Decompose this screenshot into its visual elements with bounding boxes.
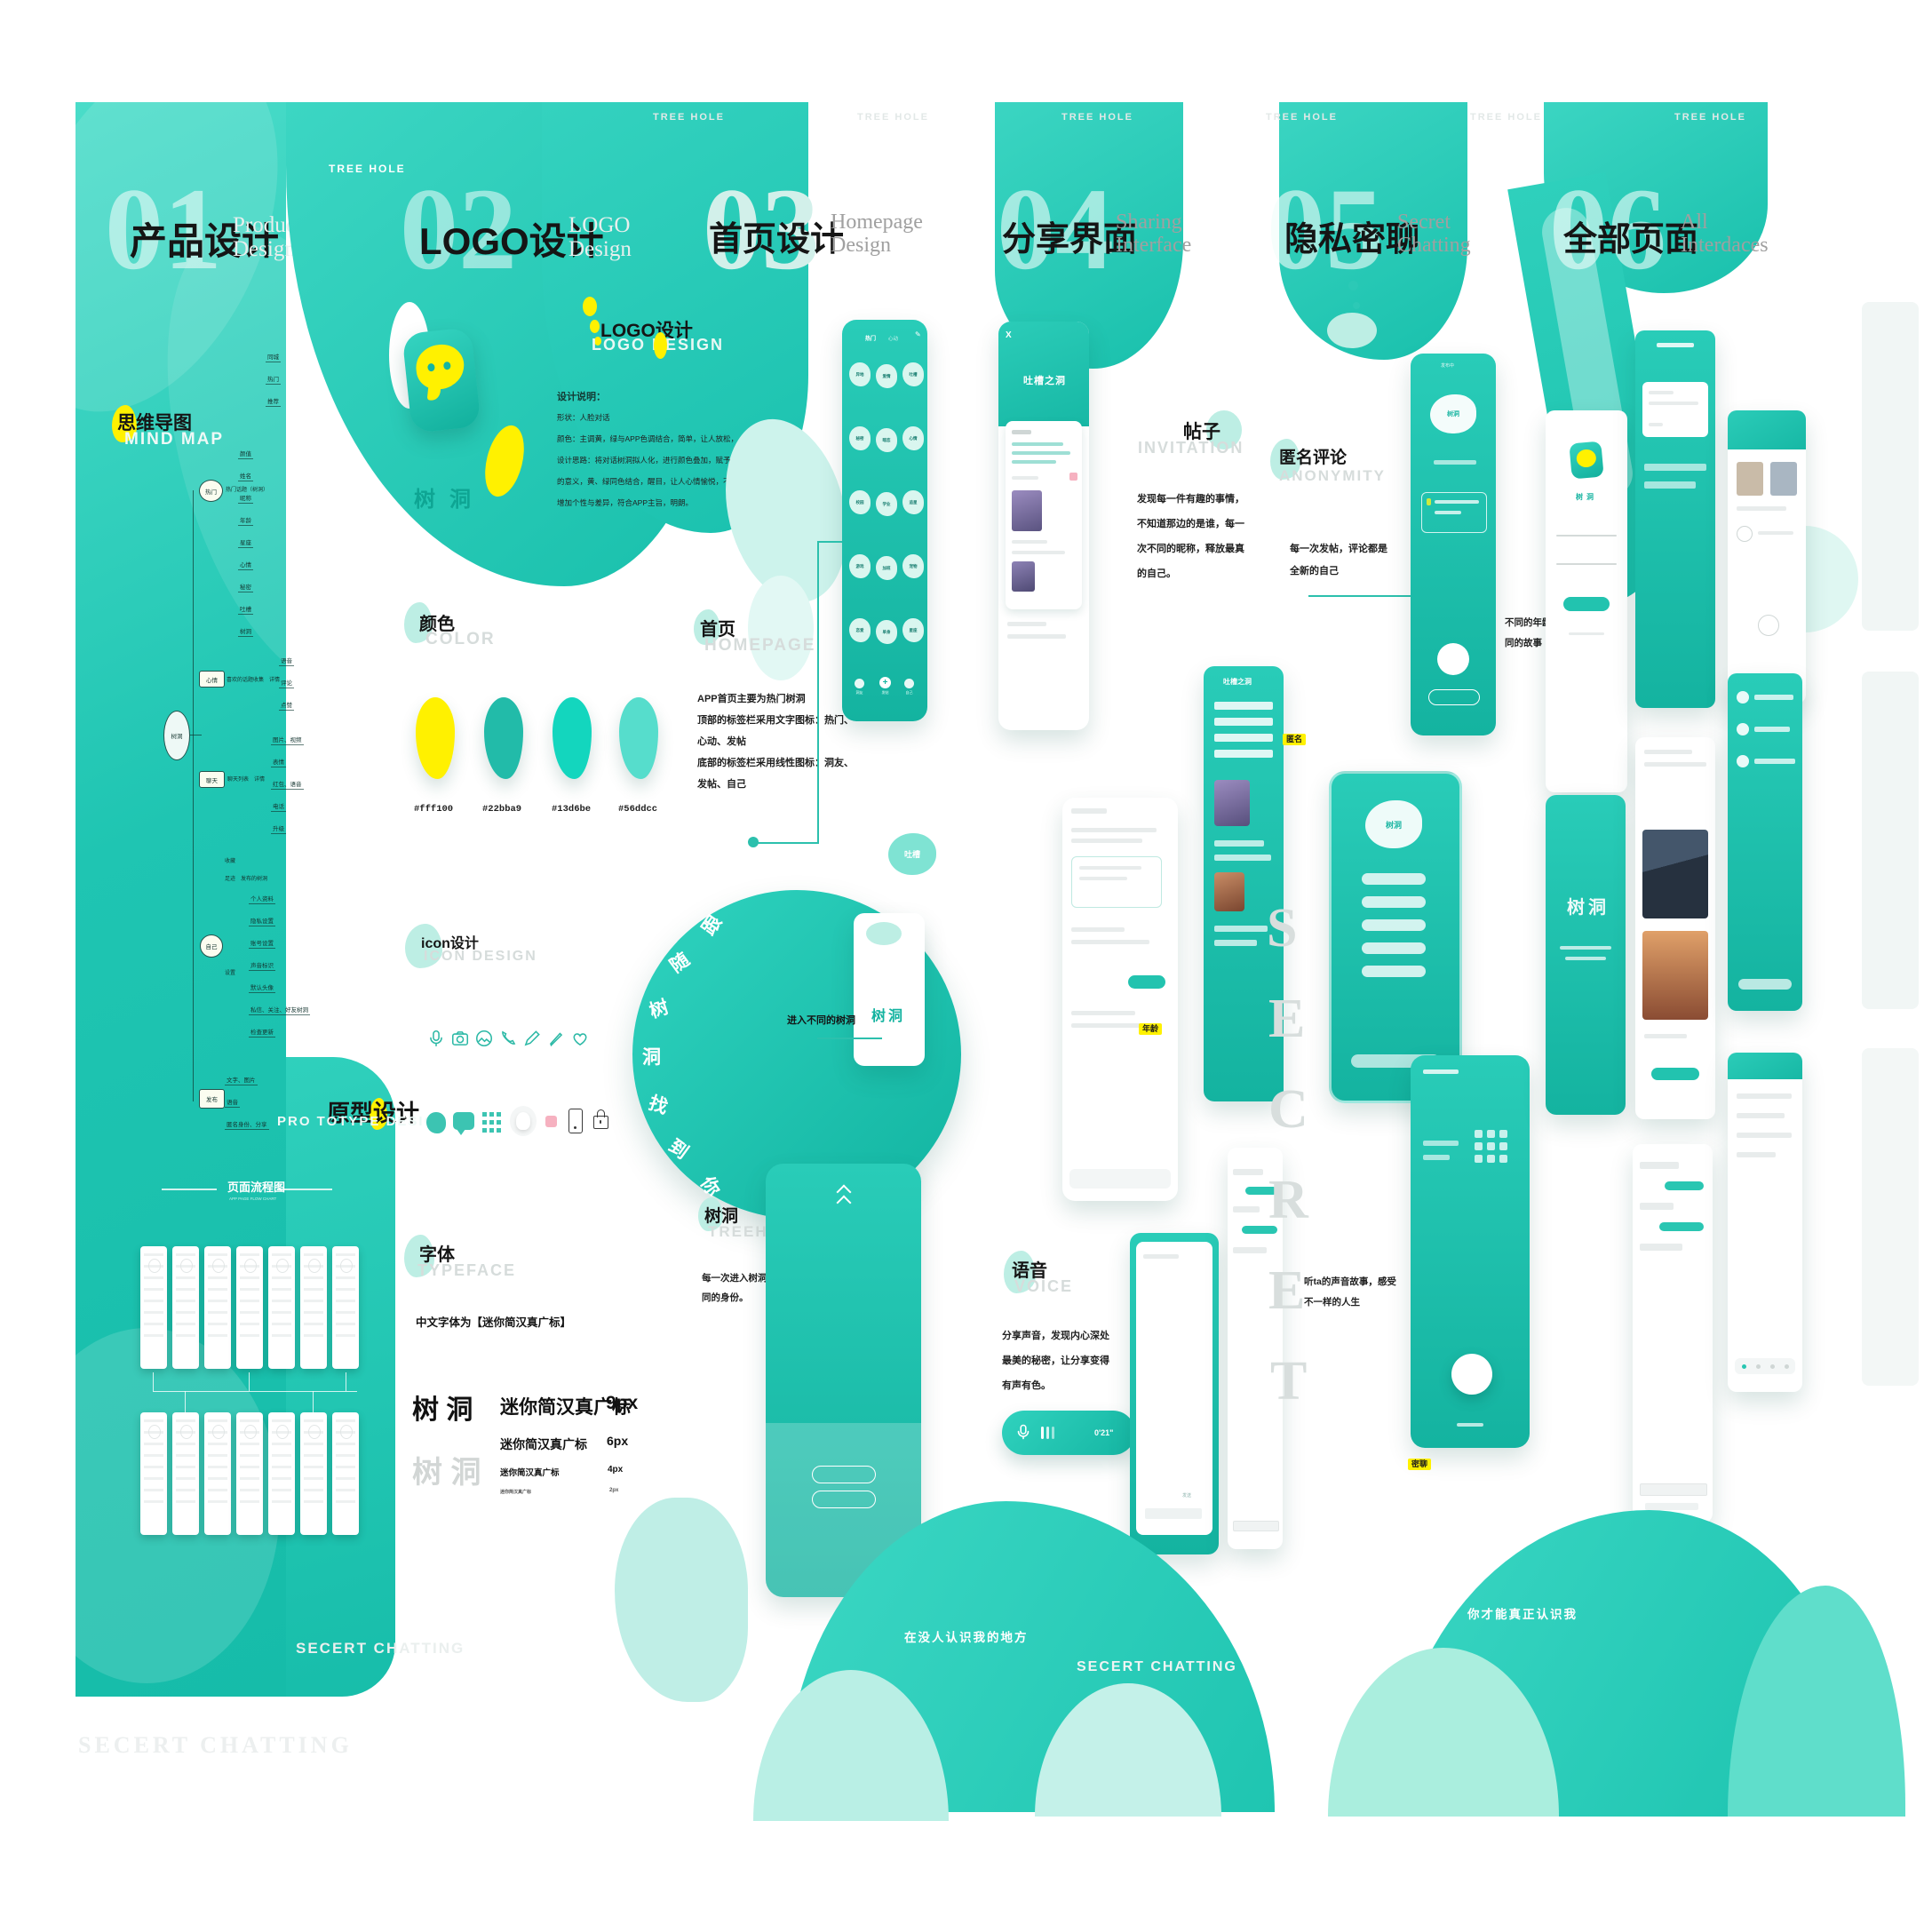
topic-list-title: 吐槽之洞: [1223, 677, 1252, 687]
ghost-icon: [510, 1106, 537, 1136]
bubble-solid-icon: [426, 1112, 446, 1133]
cancel-button: [812, 1491, 876, 1508]
wireframe-screen: [140, 1246, 167, 1369]
flow-title-en: APP PAGE FLOW CHART: [229, 1197, 276, 1201]
camera-icon: [450, 1029, 470, 1053]
text-bar: [1012, 476, 1038, 480]
story-pill: [1362, 966, 1426, 977]
topic-bubble: 爱情: [876, 364, 897, 388]
post-photo: [1012, 490, 1042, 531]
connector-dot: [748, 837, 759, 847]
wireframe-screen: [268, 1412, 295, 1535]
deco-blob: [615, 1498, 748, 1702]
wireframe-screen: [300, 1246, 327, 1369]
minus-icon: [855, 679, 864, 688]
story-pill: [1362, 919, 1426, 931]
secert-chatting-watermark: SECERT CHATTING: [296, 1640, 465, 1658]
bottom-slogan-right: 你才能真正认识我: [1467, 1604, 1578, 1622]
typeface-size-row: 迷你简汉真广标: [500, 1435, 587, 1453]
chat-bar: [1233, 1247, 1267, 1253]
comment-card: [1421, 492, 1487, 533]
connector-line: [1308, 595, 1411, 597]
wireframe-screen: [332, 1412, 359, 1535]
chat-bubble-icon: [453, 1112, 474, 1130]
pen-icon: [546, 1029, 566, 1053]
wireframe-screen: [268, 1246, 295, 1369]
text-bar: [1649, 391, 1674, 394]
bird-glyph: [1758, 615, 1779, 636]
flow-connector: [185, 1391, 186, 1412]
anonymous-button: [1428, 689, 1480, 705]
mindmap-branch-chat-leaves: 图片、视频 表情 红包、语音 电话 升级: [271, 735, 304, 846]
mindmap-branch-self-leaves: 个人资料 隐私设置 账号设置 声音标识 默认头像 私信、关注、好友树洞 检查更新: [249, 894, 310, 1049]
nav-item-post: + 发帖: [879, 677, 891, 696]
secert-chatting-watermark: SECERT CHATTING: [1077, 1659, 1237, 1675]
list-row: [1214, 840, 1264, 847]
sound-wave-icon: [1041, 1427, 1044, 1439]
chat-pill: [1659, 1222, 1704, 1231]
typeface-size-label: 2px: [609, 1488, 618, 1493]
tree-hole-watermark: TREE HOLE: [857, 112, 929, 123]
mic-icon: [1014, 1423, 1032, 1445]
lock-keyhole: [600, 1120, 602, 1124]
secret-letter: E: [1268, 988, 1305, 1051]
lock-shackle: [597, 1109, 605, 1117]
chat-bar: [1640, 1203, 1674, 1210]
list-row: [1754, 695, 1793, 700]
panel6-subtitle: All Interdaces: [1681, 211, 1769, 258]
login-screen: 树洞: [1546, 410, 1627, 792]
anonymity-section-copy: 每一次发帖，评论都是 全新的自己: [1290, 538, 1387, 583]
tag-age: 年龄: [1139, 1023, 1162, 1035]
deco-blob: [866, 922, 902, 945]
text-bar: [1560, 946, 1611, 950]
wireframe-screen: [204, 1412, 231, 1535]
secret-letter: E: [1268, 1260, 1305, 1323]
homepage-phone-mockup: 热门 心动 ✎ 异地 爱情 吐槽 秘密 暗恋 心情 校园 学业 追星 游戏 加班…: [842, 320, 927, 721]
app-logo-wordmark: 树洞: [414, 481, 485, 513]
mindmap-node-mood: 心情: [199, 671, 225, 688]
post-photo-small: [1012, 561, 1035, 592]
list-row: [1644, 464, 1706, 471]
panel2-subtitle: LOGO Design: [568, 213, 632, 261]
list-row: [1214, 734, 1273, 742]
nav-item-me: 自己: [904, 679, 914, 696]
text-bar: [1143, 1254, 1179, 1259]
chevron-down-icon: [904, 679, 914, 688]
home-section-title-en: HOMEPAGE: [704, 636, 815, 656]
typeface-size-row: 迷你简汉真广标: [500, 1466, 560, 1478]
mindmap-note: 喜欢的话题收集 详情: [227, 675, 280, 683]
mindmap-node-post: 发布: [199, 1089, 225, 1109]
mindmap-branch-hot-leaves-a: 同城 热门 推荐: [266, 352, 281, 418]
swatch-hex-label: #fff100: [414, 804, 453, 815]
login-wordmark: 树洞: [1576, 492, 1597, 502]
list-photo: [1214, 872, 1244, 911]
topic-bubble: 追星: [902, 490, 924, 514]
photo-sunset: [1642, 931, 1708, 1020]
wireframe-screen: [140, 1412, 167, 1535]
logo-bubble-tail: [427, 386, 441, 401]
wireframe-screen: [236, 1246, 263, 1369]
list-row: [1214, 718, 1273, 726]
topic-bubble: 宠物: [902, 554, 924, 578]
hole-list-screen: [1728, 673, 1802, 1011]
topic-bubble: 恋爱: [849, 618, 871, 642]
list-row: [1214, 750, 1273, 758]
treehole-entry-card: 树洞: [854, 913, 925, 1066]
list-photo: [1214, 780, 1250, 826]
color-swatch-teal-dark: [484, 697, 523, 779]
wireframe-screen: [332, 1246, 359, 1369]
story-pill: [1362, 873, 1426, 885]
mindmap-root: 树洞: [163, 711, 190, 760]
mindmap-branch-hot-leaves-b: 颜值 姓名 昵称 年龄 星座 心情 秘密 吐槽 树洞: [238, 449, 253, 648]
toolbar-bar: [1145, 1508, 1202, 1519]
slogan-char: 找: [646, 1088, 672, 1119]
chat-screen: [1633, 1144, 1713, 1523]
avatar: [1737, 691, 1749, 704]
share-button: [1651, 1068, 1699, 1080]
hashtag-bar: [1012, 442, 1063, 446]
flow-connector: [346, 1372, 346, 1391]
login-button: [1563, 597, 1610, 611]
list-row: [1214, 702, 1273, 710]
deco-dot: [590, 320, 600, 333]
flow-title: 页面流程图: [227, 1178, 285, 1195]
voice-message-pill: 0'21": [1002, 1411, 1135, 1455]
sticker-icon: [545, 1116, 557, 1127]
mic-circle-button: [1437, 643, 1469, 675]
send-hint: 发送: [1182, 1492, 1191, 1499]
topic-bubble: 游戏: [849, 554, 871, 578]
gallery-screen: [1728, 410, 1806, 704]
feed-phone-mockup: X 吐槽之洞: [998, 322, 1089, 730]
list-row: [1214, 855, 1271, 861]
topic-bubble: 暗恋: [876, 428, 897, 452]
typeface-section-title-en: TYPEFACE: [417, 1261, 516, 1280]
header-bar: [1071, 808, 1107, 814]
login-input: [1556, 535, 1617, 537]
avatar: [1737, 526, 1753, 542]
slogan-char: 跟: [695, 910, 727, 940]
chat-bubble-tail: [457, 1129, 465, 1135]
secret-letter: T: [1270, 1350, 1307, 1413]
home-indicator: [1457, 1423, 1483, 1427]
design-poster: { "brand": "TREE HOLE", "marks": {"secre…: [0, 0, 1932, 1932]
login-footnote: [1569, 632, 1604, 635]
topic-bubble: 学业: [876, 492, 897, 516]
bottom-slogan-left: 在没人认识我的地方: [904, 1627, 1029, 1645]
prototype-title-en: PRO TOTYPE DESIGN: [277, 1114, 448, 1129]
tag-secret-chat: 密聊: [1408, 1459, 1431, 1470]
text-bar: [1071, 828, 1157, 832]
feed-phone-header: X 吐槽之洞: [998, 322, 1089, 426]
typeface-size-row: 迷你简汉真广标: [500, 1489, 531, 1495]
toolbar: [1645, 1503, 1698, 1510]
nav-dot: [1742, 1364, 1746, 1369]
text-bar: [1737, 506, 1786, 511]
faint-screen: [1862, 302, 1919, 631]
mic-icon: [426, 1029, 446, 1053]
text-bar: [1434, 460, 1476, 465]
secret-letter: S: [1267, 897, 1297, 960]
swatch-hex-label: #56ddcc: [618, 804, 657, 815]
tree-hole-watermark: TREE HOLE: [653, 112, 725, 123]
slogan-char: 随: [664, 946, 695, 979]
deco-dot: [583, 297, 597, 316]
flow-connector: [313, 1391, 314, 1412]
story-pill: [1362, 896, 1426, 908]
row: [1737, 1113, 1785, 1118]
text-bar: [1644, 762, 1706, 767]
text-bar: [1012, 551, 1065, 554]
story-logo-blob: 树洞: [1365, 800, 1422, 848]
logo-design-notes-title: 设计说明：: [557, 389, 606, 403]
panel6-title: 全部页面: [1563, 211, 1698, 260]
tree-hole-watermark: TREE HOLE: [1674, 112, 1746, 123]
mindmap-note: 足迹 发布的树洞: [225, 874, 267, 882]
photo-window: [1642, 830, 1708, 918]
gallery-header: [1728, 410, 1806, 449]
status-dot: [1427, 498, 1431, 505]
logo-design-notes: 形状：人脸对话 颜色：主调黄，绿与APP色调结合，简单，让人放松， 设计思路：将…: [557, 407, 753, 513]
photo-thumb: [1770, 462, 1797, 496]
input-bar: [1233, 1521, 1279, 1531]
mobile-icon: [568, 1109, 583, 1133]
flow-divider: [277, 1189, 332, 1190]
color-swatch-teal: [553, 697, 592, 779]
feed-username-bar: [1012, 430, 1031, 434]
typeface-size-label: 9px: [606, 1393, 638, 1414]
compose-screen: [1635, 330, 1715, 708]
typeface-sample-black: 树 洞: [412, 1387, 473, 1427]
wireframe-screen: [172, 1412, 199, 1535]
flow-connector: [153, 1372, 154, 1391]
typeface-size-label: 6px: [607, 1434, 628, 1448]
slogan-char: 洞: [642, 1043, 661, 1069]
treehole-entry-label: 树洞: [871, 1004, 905, 1025]
mindmap-spine: [193, 490, 194, 1101]
text-bar: [1012, 540, 1047, 544]
topic-bubble: 吐槽: [902, 362, 924, 386]
tree-hole-watermark: TREE HOLE: [1266, 112, 1338, 123]
plus-icon: +: [879, 677, 891, 688]
close-icon: X: [1006, 330, 1012, 340]
connector-line: [817, 541, 842, 543]
tree-hole-watermark: TREE HOLE: [1061, 112, 1133, 123]
list-row: [1644, 481, 1696, 489]
chevron-up-icon: [837, 1196, 852, 1211]
color-swatch-teal-light: [619, 697, 658, 779]
login-logo-face: [1576, 449, 1597, 468]
row: [1737, 1133, 1792, 1138]
text-bar: [1423, 1141, 1459, 1146]
sticker-icon: [1069, 473, 1077, 481]
photo-thumb: [1737, 462, 1763, 496]
tab-heart: 心动: [888, 335, 898, 342]
comment-phone-mockup: [1062, 798, 1178, 1201]
panel3-subtitle: Homepage Design: [831, 211, 923, 258]
wireframe-screen: [236, 1412, 263, 1535]
compose-pencil-icon: ✎: [915, 330, 921, 338]
slogan-char: 到: [664, 1133, 695, 1165]
wireframe-screen: [172, 1246, 199, 1369]
login-input: [1556, 563, 1617, 565]
voice-story-note: 听ta的声音故事，感受 不一样的人生: [1304, 1272, 1396, 1313]
comment-box: [1071, 856, 1162, 908]
home-section-copy: APP首页主要为热门树洞 顶部的标签栏采用文字图标：热门、 心动、发帖 底部的标…: [697, 688, 854, 795]
header-bar: [1657, 343, 1694, 347]
anonymous-post-phone: 发布中 树洞: [1411, 354, 1496, 735]
lock-icon: [593, 1116, 608, 1129]
voice-section-copy: 分享声音，发现内心深处 最美的秘密，让分享变得 有声有色。: [1002, 1324, 1109, 1398]
anonymity-section-title-en: ANONYMITY: [1279, 467, 1386, 485]
chat-bar: [1233, 1206, 1260, 1212]
topic-bubble: 星座: [902, 618, 924, 642]
logo-eye: [427, 363, 435, 372]
list-row: [1214, 926, 1268, 932]
logo-eye: [443, 362, 451, 370]
mindmap-note: 设置: [225, 968, 235, 976]
flow-divider: [162, 1189, 217, 1190]
text-bar: [1079, 877, 1127, 880]
slogan-char: 树: [646, 992, 672, 1023]
wireframe-screen: [204, 1246, 231, 1369]
list-icon: [482, 1112, 487, 1117]
deco-blob: [654, 332, 667, 359]
text-bar: [1071, 927, 1125, 932]
faint-screen: [1862, 1048, 1919, 1386]
mindmap-title-en: MIND MAP: [124, 430, 224, 449]
text-bar: [1071, 1011, 1135, 1015]
panel5-subtitle: Secret Chatting: [1397, 211, 1471, 258]
treehole-logo-blob: 树洞: [1430, 394, 1476, 433]
chat-bar: [1640, 1244, 1682, 1251]
ghost-body: [516, 1112, 530, 1130]
compose-card: [1642, 382, 1708, 437]
phone-status-text: 发布中: [1441, 362, 1454, 369]
text-bar: [1435, 500, 1479, 504]
voice-section-title-en: VOICE: [1014, 1277, 1073, 1296]
mindmap-branch-mood-leaves: 语音 评论 点赞: [279, 656, 294, 722]
heart-icon: [570, 1029, 590, 1053]
voice-chat-phone: 发送: [1130, 1233, 1219, 1554]
header-bar: [1423, 1069, 1459, 1074]
text-bar: [1079, 866, 1141, 870]
deco-ellipse: [1327, 313, 1377, 348]
voice-chat-screen: 发送: [1136, 1242, 1212, 1535]
post-section-title-en: INVITATION: [1138, 439, 1244, 457]
chat-bar: [1233, 1169, 1263, 1175]
secret-letter: R: [1268, 1169, 1308, 1232]
bottom-bar: [1738, 979, 1792, 990]
list-row: [1754, 727, 1790, 732]
mobile-home-dot: [574, 1126, 576, 1129]
text-bar: [1007, 634, 1066, 639]
color-swatch-yellow: [416, 697, 455, 779]
panel4-subtitle: Sharing Interface: [1116, 211, 1191, 258]
row: [1737, 1093, 1792, 1099]
mindmap-node-self: 自己: [200, 934, 223, 958]
tree-hole-logotype-white: TREE HOLE: [329, 163, 406, 175]
story-pill: [1362, 942, 1426, 954]
mindmap-note: 收藏: [225, 856, 235, 864]
typeface-size-label: 4px: [608, 1465, 623, 1475]
chat-bar: [1640, 1162, 1679, 1169]
treehole-promo-screen: 树洞: [1546, 795, 1626, 1115]
image-icon: [474, 1029, 494, 1053]
topic-bubble: 异地: [849, 362, 871, 386]
feed-card: [1006, 421, 1082, 609]
mindmap-branch-post-leaves: 文字、图片 语音 匿名身份、分享: [225, 1075, 269, 1141]
text-bar: [1649, 402, 1698, 405]
flow-connector: [249, 1372, 250, 1391]
flow-connector: [153, 1391, 357, 1392]
deco-dot: [1353, 302, 1360, 309]
avatar: [1737, 723, 1749, 735]
hashtag-bar: [1012, 451, 1070, 455]
nav-item-friends: 洞友: [855, 679, 864, 696]
record-circle-button: [1451, 1354, 1492, 1395]
profile-screen: [1728, 1053, 1802, 1392]
app-logo-icon: [402, 327, 481, 433]
connector-line: [817, 541, 819, 843]
promo-wordmark: 树洞: [1567, 893, 1610, 918]
anonymity-section-title: 匿名评论: [1279, 444, 1347, 468]
tab-hot: 热门: [865, 334, 876, 342]
input-bar: [1640, 1483, 1707, 1496]
list-row: [1214, 940, 1257, 946]
deco-ellipse: [748, 576, 814, 680]
pencil-icon: [522, 1029, 542, 1053]
text-bar: [1007, 622, 1046, 626]
tree-hole-watermark: TREE HOLE: [1470, 112, 1542, 123]
text-bar: [1435, 511, 1461, 514]
icon-section-title-en: ICON DESIGN: [424, 949, 537, 965]
topic-bubble: 心情: [902, 426, 924, 450]
toolbar: [1069, 1169, 1171, 1189]
text-bar: [1071, 839, 1142, 843]
topic-bubble: 校园: [849, 490, 871, 514]
logo-face: [414, 342, 466, 391]
photo-post-screen: [1635, 737, 1715, 1119]
text-bar: [1649, 423, 1663, 426]
topic-bubble: 秘密: [849, 426, 871, 450]
hashtag-bar: [1012, 460, 1056, 464]
confirm-button: [812, 1466, 876, 1483]
topic-bubble-large: 吐槽: [888, 833, 936, 875]
connector-line: [757, 842, 819, 844]
typeface-sample-gray: 树 洞: [412, 1448, 481, 1491]
tag-anonymous: 匿名: [1283, 734, 1306, 745]
color-section-title-en: COLOR: [425, 630, 496, 649]
typeface-note: 中文字体为【迷你简汉真广标】: [416, 1313, 571, 1330]
enter-note: 进入不同的树洞: [787, 1013, 855, 1027]
topic-bubble: 加班: [876, 556, 897, 580]
avatar: [1737, 755, 1749, 767]
keypad-grid: [1475, 1130, 1507, 1163]
profile-header: [1728, 1053, 1802, 1079]
reply-button: [1128, 975, 1165, 989]
secert-chatting-watermark: SECERT CHATTING: [78, 1732, 353, 1759]
topic-bubble: 单身: [876, 620, 897, 644]
text-bar: [1644, 1034, 1687, 1038]
text-bar: [1565, 957, 1606, 960]
treehole-identity-phone: [766, 1164, 921, 1597]
phone-icon: [498, 1029, 518, 1053]
swatch-hex-label: #13d6be: [552, 804, 591, 815]
